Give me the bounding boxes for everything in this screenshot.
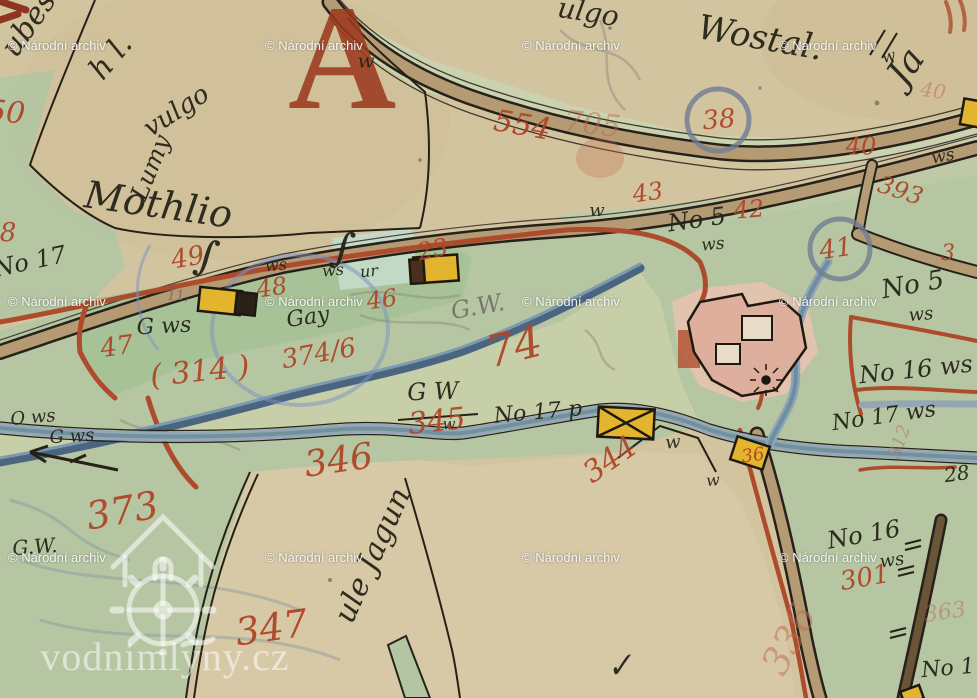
building-yellow-edge-ne (960, 98, 977, 127)
archive-watermark: © Národní archiv (522, 294, 620, 309)
region-tan-bottom (194, 452, 795, 698)
map-scan: A ubesh l.vulgoLumyMothlioulgoWostal.Jaw… (0, 0, 977, 698)
map-label: w (664, 431, 682, 453)
map-label: ws (908, 303, 934, 326)
map-label: 3 (941, 241, 955, 266)
sun-symbol (750, 364, 782, 396)
archive-watermark: © Národní archiv (779, 550, 877, 565)
map-label: 38 (701, 104, 737, 137)
map-label: 49 (168, 240, 207, 275)
map-label: 345 (407, 401, 468, 442)
map-label: 46 (364, 284, 399, 316)
archive-watermark: © Národní archiv (779, 294, 877, 309)
map-label: 8 (0, 218, 16, 248)
archive-watermark: © Národní archiv (8, 550, 106, 565)
map-label: No 1 (919, 654, 975, 684)
map-label: G ws (136, 313, 192, 341)
archive-watermark: © Národní archiv (265, 38, 363, 53)
archive-watermark: © Národní archiv (265, 550, 363, 565)
building-dark-annex (235, 292, 257, 316)
map-label: 42 (731, 194, 765, 225)
archive-watermark: © Národní archiv (522, 38, 620, 53)
map-label: 28 (942, 460, 972, 487)
map-label: 47 (97, 330, 135, 365)
plate-letter: A (288, 0, 396, 141)
map-label: w (589, 200, 605, 221)
archive-watermark: © Národní archiv (8, 38, 106, 53)
map-canvas: A ubesh l.vulgoLumyMothlioulgoWostal.Jaw… (0, 0, 977, 698)
map-label: 41 (816, 232, 854, 266)
map-label: G ws (49, 425, 95, 448)
map-label: 40 (845, 133, 877, 161)
map-label: 40 (918, 77, 948, 104)
archive-watermark: © Národní archiv (522, 550, 620, 565)
map-label: ur (359, 261, 380, 282)
map-label: ulgo (555, 0, 621, 33)
map-label: 705 (562, 104, 623, 145)
archive-watermark: © Národní archiv (8, 294, 106, 309)
archive-watermark: © Národní archiv (779, 38, 877, 53)
map-label: 43 (630, 177, 665, 209)
map-label: w (705, 470, 721, 490)
archive-watermark: © Národní archiv (265, 294, 363, 309)
map-label: ws (930, 145, 957, 169)
map-label: 11, (167, 288, 189, 304)
map-label: 36 (740, 444, 766, 468)
map-label: ws (700, 234, 725, 256)
map-label: 50 (0, 93, 27, 131)
